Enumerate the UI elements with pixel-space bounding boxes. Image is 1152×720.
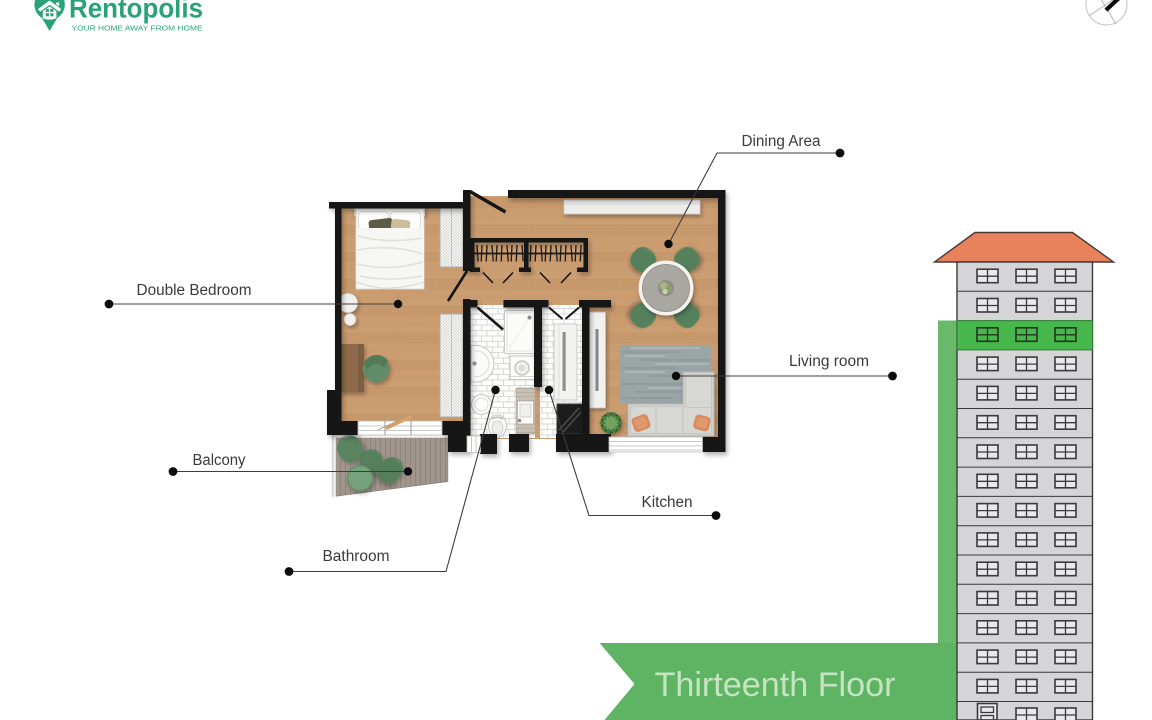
svg-text:YOUR HOME AWAY FROM HOME: YOUR HOME AWAY FROM HOME [72, 24, 203, 33]
svg-text:Balcony: Balcony [193, 452, 246, 469]
svg-text:Double Bedroom: Double Bedroom [137, 282, 252, 299]
svg-text:Kitchen: Kitchen [642, 494, 693, 511]
svg-text:Rentopolis: Rentopolis [69, 0, 203, 24]
svg-text:Bathroom: Bathroom [323, 548, 390, 565]
svg-text:Living room: Living room [789, 353, 869, 370]
svg-text:Thirteenth Floor: Thirteenth Floor [655, 666, 896, 704]
svg-text:Dining Area: Dining Area [742, 133, 821, 150]
